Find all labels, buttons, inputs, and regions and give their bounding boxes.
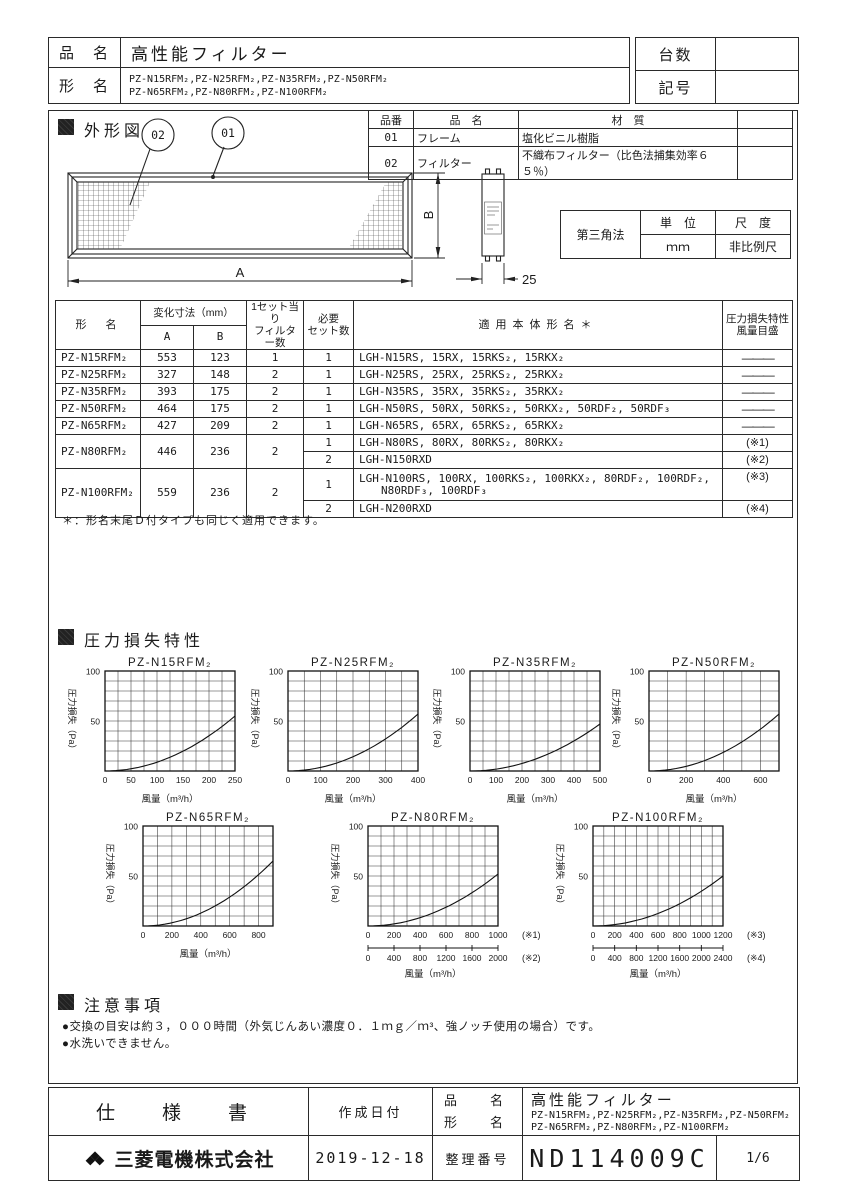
balloon-01-leader xyxy=(213,147,224,176)
svg-text:300: 300 xyxy=(378,775,392,785)
col-filters-per-set: 1セット当り フィルター数 xyxy=(247,301,304,350)
svg-text:50: 50 xyxy=(635,717,645,727)
svg-text:圧力損失（Pa）: 圧力損失（Pa） xyxy=(67,688,78,753)
svg-text:0: 0 xyxy=(141,930,146,940)
svg-text:100: 100 xyxy=(313,775,327,785)
unit-label: 単 位 xyxy=(641,211,716,235)
svg-text:400: 400 xyxy=(387,953,401,963)
svg-text:圧力損失（Pa）: 圧力損失（Pa） xyxy=(432,688,443,753)
table-row: PZ-N50RFM₂ 464 175 2 1 LGH-N50RS, 50RX, … xyxy=(56,401,793,418)
symbol-value xyxy=(716,71,799,104)
svg-text:300: 300 xyxy=(541,775,555,785)
svg-text:200: 200 xyxy=(165,930,179,940)
col-dim-b: B xyxy=(194,325,247,350)
svg-text:100: 100 xyxy=(489,775,503,785)
svg-text:1000: 1000 xyxy=(692,930,711,940)
svg-text:(※1): (※1) xyxy=(522,930,541,940)
svg-text:PZ-N65RFM₂: PZ-N65RFM₂ xyxy=(166,812,250,824)
svg-text:200: 200 xyxy=(515,775,529,785)
svg-text:400: 400 xyxy=(716,775,730,785)
part-material: 不織布フィルター（比色法捕集効率６５％） xyxy=(519,147,738,180)
svg-text:100: 100 xyxy=(269,667,283,677)
filter-mesh-right xyxy=(348,182,402,249)
svg-text:PZ-N35RFM₂: PZ-N35RFM₂ xyxy=(493,657,577,669)
chart-pz-n80rfm2: PZ-N80RFM₂5010002004006008001000(※1)0400… xyxy=(322,812,562,987)
model-list-line2: PZ-N65RFM₂,PZ-N80RFM₂,PZ-N100RFM₂ xyxy=(129,86,628,99)
col-applicable-models: 適用本体形名＊ xyxy=(354,301,723,350)
spec-sheet-page: 品 名 高性能フィルター 形 名 PZ-N15RFM₂,PZ-N25RFM₂,P… xyxy=(0,0,848,1200)
part-name: フィルター xyxy=(414,147,519,180)
balloon-02-label: 02 xyxy=(151,128,165,142)
svg-text:圧力損失（Pa）: 圧力損失（Pa） xyxy=(250,688,261,753)
doc-number-value: ND114009C xyxy=(523,1136,717,1181)
svg-text:800: 800 xyxy=(465,930,479,940)
svg-text:風量（m³/h）: 風量（m³/h） xyxy=(685,793,742,805)
svg-text:200: 200 xyxy=(387,930,401,940)
svg-text:PZ-N80RFM₂: PZ-N80RFM₂ xyxy=(391,812,475,824)
svg-text:0: 0 xyxy=(591,930,596,940)
footer-product-title: 高性能フィルター xyxy=(531,1089,798,1110)
filter-mesh-left xyxy=(78,182,150,249)
svg-text:0: 0 xyxy=(366,930,371,940)
dim-a-label: A xyxy=(236,265,245,280)
footer-models-line2: PZ-N65RFM₂,PZ-N80RFM₂,PZ-N100RFM₂ xyxy=(531,1122,798,1134)
svg-text:200: 200 xyxy=(202,775,216,785)
svg-text:0: 0 xyxy=(591,953,596,963)
scale-value: 非比例尺 xyxy=(716,235,791,259)
note-item: ●交換の目安は約３，０００時間（外気じんあい濃度０．１ｍｇ／ｍ³、強ノッチ使用の… xyxy=(62,1018,600,1034)
chart-pz-n15rfm2: PZ-N15RFM₂50100050100150200250風量（m³/h）圧力… xyxy=(59,657,259,812)
model-name-label: 形 名 xyxy=(49,68,121,104)
spec-footnote: ＊：形名末尾Ｄ付タイプも同じく適用できます。 xyxy=(62,512,325,528)
svg-text:0: 0 xyxy=(468,775,473,785)
svg-text:600: 600 xyxy=(753,775,767,785)
parts-col-material: 材 質 xyxy=(519,111,738,129)
title-block-table: 品 名 高性能フィルター 形 名 PZ-N15RFM₂,PZ-N25RFM₂,P… xyxy=(48,37,630,104)
table-row: PZ-N15RFM₂ 553 123 1 1 LGH-N15RS, 15RX, … xyxy=(56,350,793,367)
svg-text:800: 800 xyxy=(413,953,427,963)
unit-count-value xyxy=(716,38,799,71)
svg-text:150: 150 xyxy=(176,775,190,785)
doc-number-label: 整理番号 xyxy=(433,1136,523,1181)
creation-date-label: 作成日付 xyxy=(309,1088,433,1136)
svg-text:2000: 2000 xyxy=(489,953,508,963)
table-row: 02 フィルター 不織布フィルター（比色法捕集効率６５％） xyxy=(369,147,793,180)
part-material: 塩化ビニル樹脂 xyxy=(519,129,738,147)
chart-pz-n100rfm2: PZ-N100RFM₂50100020040060080010001200(※3… xyxy=(547,812,787,987)
svg-text:1600: 1600 xyxy=(670,953,689,963)
product-name-value: 高性能フィルター xyxy=(121,38,630,68)
svg-text:100: 100 xyxy=(574,822,588,832)
footer-product-name-label: 品 名 xyxy=(434,1090,521,1112)
svg-text:50: 50 xyxy=(129,872,139,882)
pressure-loss-section-title: 圧力損失特性 xyxy=(84,627,204,651)
table-row: PZ-N65RFM₂ 427 209 2 1 LGH-N65RS, 65RX, … xyxy=(56,418,793,435)
col-dims: 変化寸法（mm） xyxy=(141,301,247,326)
table-row: PZ-N35RFM₂ 393 175 2 1 LGH-N35RS, 35RX, … xyxy=(56,384,793,401)
svg-text:圧力損失（Pa）: 圧力損失（Pa） xyxy=(330,843,341,908)
svg-text:2000: 2000 xyxy=(692,953,711,963)
section-bullet-icon xyxy=(58,629,74,645)
svg-text:0: 0 xyxy=(647,775,652,785)
chart-pz-n25rfm2: PZ-N25RFM₂501000100200300400風量（m³/h）圧力損失… xyxy=(242,657,442,812)
svg-text:(※3): (※3) xyxy=(747,930,766,940)
unit-count-label: 台数 xyxy=(636,38,716,71)
note-item: ●水洗いできません。 xyxy=(62,1035,177,1051)
svg-text:風量（m³/h）: 風量（m³/h） xyxy=(179,948,236,960)
svg-text:400: 400 xyxy=(194,930,208,940)
mitsubishi-logo-icon xyxy=(82,1151,108,1166)
svg-text:(※4): (※4) xyxy=(747,953,766,963)
svg-text:400: 400 xyxy=(608,953,622,963)
svg-text:100: 100 xyxy=(150,775,164,785)
col-dim-a: A xyxy=(141,325,194,350)
svg-text:200: 200 xyxy=(679,775,693,785)
svg-text:100: 100 xyxy=(124,822,138,832)
table-row: PZ-N80RFM₂ 446 236 2 1 LGH-N80RS, 80RX, … xyxy=(56,435,793,452)
svg-text:50: 50 xyxy=(126,775,136,785)
svg-text:0: 0 xyxy=(286,775,291,785)
svg-text:200: 200 xyxy=(608,930,622,940)
scale-label: 尺 度 xyxy=(716,211,791,235)
svg-text:50: 50 xyxy=(274,717,284,727)
svg-text:800: 800 xyxy=(629,953,643,963)
table-row: 01 フレーム 塩化ビニル樹脂 xyxy=(369,129,793,147)
dim-25-label: 25 xyxy=(522,272,536,287)
svg-text:200: 200 xyxy=(346,775,360,785)
svg-text:圧力損失（Pa）: 圧力損失（Pa） xyxy=(105,843,116,908)
svg-text:100: 100 xyxy=(451,667,465,677)
svg-text:圧力損失（Pa）: 圧力損失（Pa） xyxy=(611,688,622,753)
footer-title-block: 仕 様 書 作成日付 品 名 形 名 高性能フィルター PZ-N15RFM₂,P… xyxy=(48,1087,800,1181)
spec-table: 形 名 変化寸法（mm） 1セット当り フィルター数 必要 セット数 適用本体形… xyxy=(55,300,793,518)
svg-text:風量（m³/h）: 風量（m³/h） xyxy=(506,793,563,805)
svg-text:0: 0 xyxy=(103,775,108,785)
symbol-label: 記号 xyxy=(636,71,716,104)
projection-method: 第三角法 xyxy=(561,211,641,259)
svg-text:50: 50 xyxy=(91,717,101,727)
svg-text:(※2): (※2) xyxy=(522,953,541,963)
svg-text:800: 800 xyxy=(673,930,687,940)
page-number: 1/6 xyxy=(717,1136,800,1181)
part-no: 02 xyxy=(369,147,414,180)
svg-text:400: 400 xyxy=(413,930,427,940)
footer-models-line1: PZ-N15RFM₂,PZ-N25RFM₂,PZ-N35RFM₂,PZ-N50R… xyxy=(531,1110,798,1122)
svg-text:風量（m³/h）: 風量（m³/h） xyxy=(629,968,686,980)
col-airflow-scale: 圧力損失特性 風量目盛 xyxy=(723,301,793,350)
table-row: PZ-N100RFM₂ 559 236 2 1 LGH-N100RS, 100R… xyxy=(56,469,793,501)
parts-col-name: 品 名 xyxy=(414,111,519,129)
svg-text:0: 0 xyxy=(366,953,371,963)
svg-text:100: 100 xyxy=(630,667,644,677)
svg-text:PZ-N50RFM₂: PZ-N50RFM₂ xyxy=(672,657,756,669)
quantity-table: 台数 記号 xyxy=(635,37,799,104)
dim-b-label: B xyxy=(421,211,436,220)
svg-text:2400: 2400 xyxy=(714,953,733,963)
chart-pz-n35rfm2: PZ-N35RFM₂501000100200300400500風量（m³/h）圧… xyxy=(424,657,624,812)
svg-text:圧力損失（Pa）: 圧力損失（Pa） xyxy=(555,843,566,908)
svg-text:600: 600 xyxy=(223,930,237,940)
svg-text:50: 50 xyxy=(354,872,364,882)
svg-text:1200: 1200 xyxy=(714,930,733,940)
svg-text:250: 250 xyxy=(228,775,242,785)
part-name: フレーム xyxy=(414,129,519,147)
svg-text:風量（m³/h）: 風量（m³/h） xyxy=(324,793,381,805)
leader-dot xyxy=(211,175,215,179)
document-type: 仕 様 書 xyxy=(49,1088,309,1136)
unit-value: ｍｍ xyxy=(641,235,716,259)
svg-text:600: 600 xyxy=(439,930,453,940)
svg-text:400: 400 xyxy=(629,930,643,940)
product-name-label: 品 名 xyxy=(49,38,121,68)
svg-text:400: 400 xyxy=(567,775,581,785)
parts-table: 品番 品 名 材 質 01 フレーム 塩化ビニル樹脂 02 フィルター 不織布フ… xyxy=(368,110,793,180)
svg-text:100: 100 xyxy=(86,667,100,677)
table-row: PZ-N25RFM₂ 327 148 2 1 LGH-N25RS, 25RX, … xyxy=(56,367,793,384)
svg-text:50: 50 xyxy=(456,717,466,727)
creation-date-value: 2019-12-18 xyxy=(309,1136,433,1181)
svg-text:風量（m³/h）: 風量（m³/h） xyxy=(404,968,461,980)
parts-col-no: 品番 xyxy=(369,111,414,129)
svg-text:PZ-N15RFM₂: PZ-N15RFM₂ xyxy=(128,657,212,669)
svg-text:風量（m³/h）: 風量（m³/h） xyxy=(141,793,198,805)
svg-text:100: 100 xyxy=(349,822,363,832)
model-list-line1: PZ-N15RFM₂,PZ-N25RFM₂,PZ-N35RFM₂,PZ-N50R… xyxy=(129,73,628,86)
company-name: 三菱電機株式会社 xyxy=(114,1145,274,1172)
svg-text:1000: 1000 xyxy=(489,930,508,940)
svg-text:800: 800 xyxy=(251,930,265,940)
svg-text:1200: 1200 xyxy=(437,953,456,963)
footer-model-name-label: 形 名 xyxy=(434,1112,521,1134)
part-no: 01 xyxy=(369,129,414,147)
balloon-01-label: 01 xyxy=(221,126,235,140)
projection-table: 第三角法 単 位 尺 度 ｍｍ 非比例尺 xyxy=(560,210,791,259)
chart-pz-n50rfm2: PZ-N50RFM₂501000200400600風量（m³/h）圧力損失（Pa… xyxy=(603,657,803,812)
svg-text:PZ-N100RFM₂: PZ-N100RFM₂ xyxy=(612,812,704,824)
svg-text:PZ-N25RFM₂: PZ-N25RFM₂ xyxy=(311,657,395,669)
svg-text:1200: 1200 xyxy=(649,953,668,963)
svg-text:1600: 1600 xyxy=(463,953,482,963)
parts-col-extra xyxy=(738,111,793,129)
notes-section-title: 注意事項 xyxy=(84,992,164,1016)
svg-text:50: 50 xyxy=(579,872,589,882)
chart-pz-n65rfm2: PZ-N65RFM₂501000200400600800風量（m³/h）圧力損失… xyxy=(97,812,297,967)
col-required-sets: 必要 セット数 xyxy=(304,301,354,350)
svg-text:600: 600 xyxy=(651,930,665,940)
col-model: 形 名 xyxy=(56,301,141,350)
section-bullet-icon xyxy=(58,994,74,1010)
